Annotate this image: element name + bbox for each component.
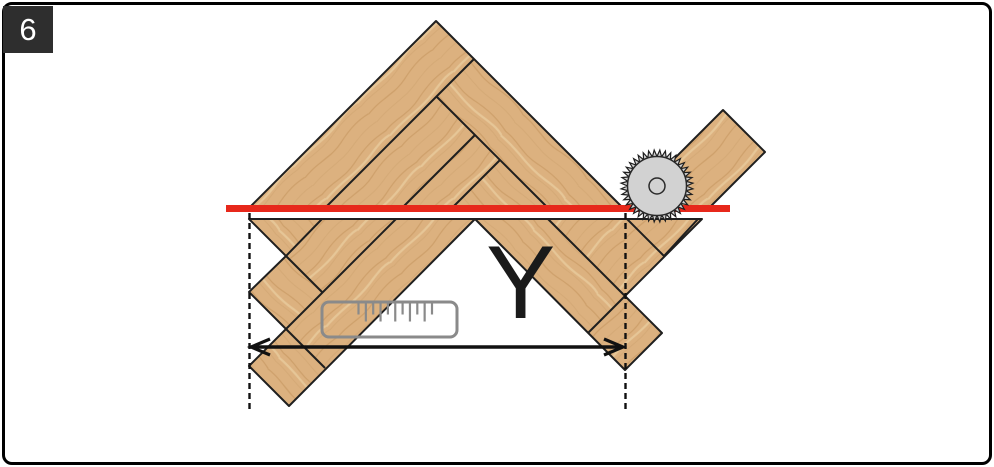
dimension-label: Y <box>486 231 555 335</box>
step-number-badge: 6 <box>3 6 53 53</box>
installation-step-diagram: 6 Y <box>0 0 994 467</box>
step-number: 6 <box>19 12 36 48</box>
herringbone-peak <box>250 21 622 207</box>
saw-arbor-hole <box>649 178 665 194</box>
